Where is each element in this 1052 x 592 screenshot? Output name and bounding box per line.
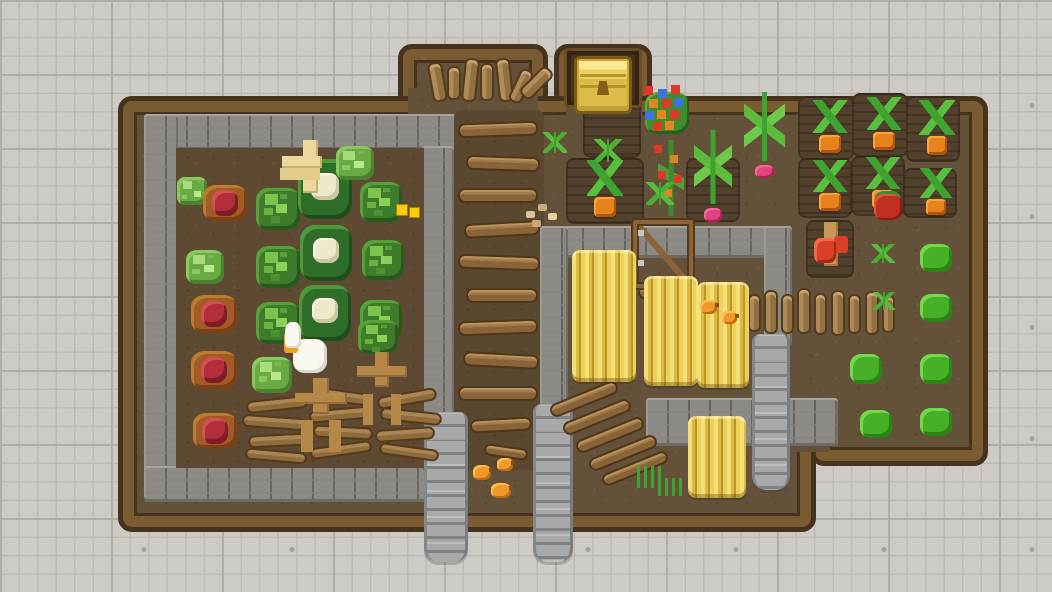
carrot-crop[interactable] xyxy=(808,100,852,154)
wood-plank xyxy=(466,288,538,303)
cabbage-crop[interactable] xyxy=(254,244,302,290)
seedling-crop[interactable] xyxy=(540,130,570,158)
farmer-figure[interactable] xyxy=(294,376,348,436)
carrot-crop[interactable] xyxy=(916,100,958,156)
scarecrow-figure[interactable] xyxy=(282,140,338,200)
seed-drops[interactable] xyxy=(522,203,562,229)
wheat-crop[interactable] xyxy=(572,250,636,382)
chick-animal[interactable] xyxy=(473,465,491,480)
chick-animal[interactable] xyxy=(491,483,511,498)
wood-plank xyxy=(458,386,538,401)
wood-plank xyxy=(458,121,538,139)
carrot-crop[interactable] xyxy=(862,97,906,151)
cauliflower-crop[interactable] xyxy=(298,224,354,282)
gold-nuggets[interactable] xyxy=(396,204,420,218)
gnome-figure[interactable] xyxy=(812,222,852,270)
chick-animal[interactable] xyxy=(700,300,717,314)
red-cabbage-crop[interactable] xyxy=(190,348,238,392)
cabbage-crop[interactable] xyxy=(360,238,406,282)
radish-crop[interactable] xyxy=(688,130,738,222)
grass-tuft xyxy=(658,478,684,496)
bush-plant[interactable] xyxy=(920,354,952,384)
wood-log xyxy=(848,294,861,334)
carrot-crop[interactable] xyxy=(808,160,852,212)
seedling-crop[interactable] xyxy=(643,180,677,210)
wheat-crop[interactable] xyxy=(688,416,746,498)
radish-crop[interactable] xyxy=(737,92,792,178)
farmer-figure[interactable] xyxy=(356,350,408,408)
treasure-chest[interactable] xyxy=(574,56,632,114)
wood-plank xyxy=(458,188,538,203)
stone-wall xyxy=(540,226,568,408)
red-cabbage-crop[interactable] xyxy=(192,410,238,452)
goose-animal[interactable] xyxy=(284,322,336,380)
flower-bed[interactable] xyxy=(640,84,694,142)
seedling-crop[interactable] xyxy=(868,242,898,268)
red-cabbage-crop[interactable] xyxy=(202,182,248,224)
bush-plant[interactable] xyxy=(920,244,952,272)
young-cabbage-crop[interactable] xyxy=(184,248,226,286)
red-cabbage-crop[interactable] xyxy=(190,292,238,336)
bush-plant[interactable] xyxy=(850,354,882,384)
bush-plant[interactable] xyxy=(860,410,892,438)
wood-log xyxy=(831,290,845,336)
chick-animal[interactable] xyxy=(497,458,513,471)
wheat-crop[interactable] xyxy=(697,282,749,388)
stone-wall xyxy=(144,114,178,502)
carrot-crop[interactable] xyxy=(583,160,627,218)
bush-plant[interactable] xyxy=(920,294,952,322)
chick-animal[interactable] xyxy=(722,311,737,324)
wood-plank xyxy=(458,319,538,337)
wood-log xyxy=(797,288,811,334)
red-flower-plant[interactable] xyxy=(874,194,902,220)
stone-wall xyxy=(144,466,456,502)
carrot-crop[interactable] xyxy=(915,168,957,216)
wood-log xyxy=(814,293,827,335)
young-cabbage-crop[interactable] xyxy=(334,144,376,182)
wood-log xyxy=(781,294,794,334)
stone-path xyxy=(752,334,790,490)
wood-plank xyxy=(466,155,540,173)
farm-scene xyxy=(0,0,1052,592)
wood-log xyxy=(480,63,494,101)
wood-log xyxy=(447,66,461,100)
seedling-crop[interactable] xyxy=(870,290,898,314)
wood-log xyxy=(748,294,761,332)
wood-log xyxy=(764,290,778,334)
wheat-crop[interactable] xyxy=(644,276,698,386)
wood-plank xyxy=(458,254,540,272)
bush-plant[interactable] xyxy=(920,408,952,436)
